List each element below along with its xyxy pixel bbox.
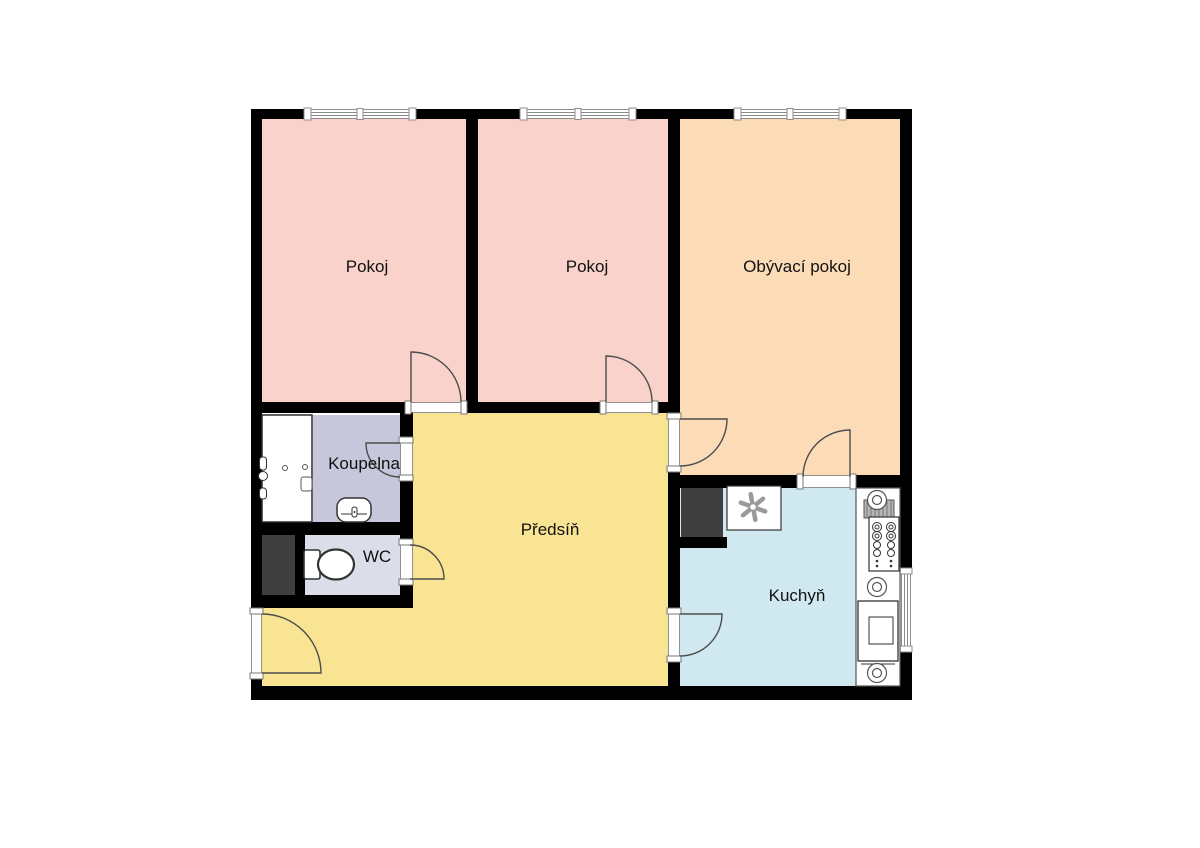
- washbasin-tap-dot: [354, 511, 356, 513]
- door-jamb-cap: [250, 608, 263, 614]
- window-cap: [409, 108, 416, 120]
- room-label-kuchyn: Kuchyň: [769, 586, 826, 605]
- fan-hub: [750, 504, 756, 510]
- door-jamb: [600, 403, 658, 413]
- window-cap: [900, 568, 912, 574]
- room-label-wc: WC: [363, 547, 391, 566]
- door-jamb-cap: [250, 673, 263, 679]
- door-jamb-cap: [797, 474, 803, 489]
- tap-spout: [260, 488, 267, 499]
- door-jamb-cap: [667, 413, 681, 419]
- wall: [668, 537, 727, 548]
- door-jamb-cap: [399, 579, 413, 585]
- door-jamb: [797, 476, 856, 488]
- room-label-koupelna: Koupelna: [328, 454, 400, 473]
- wall: [467, 402, 600, 413]
- door-jamb-cap: [667, 608, 681, 614]
- window-kuchyn: [900, 568, 912, 652]
- window-obyvaci-pokoj: [734, 108, 846, 120]
- room-obyvaci-pokoj-floor: [680, 119, 900, 475]
- window-frame: [902, 574, 911, 646]
- window-pokoj-1: [304, 108, 416, 120]
- room-predsin-floor: [413, 413, 668, 686]
- door-jamb-cap: [399, 437, 413, 443]
- window-cap: [520, 108, 527, 120]
- wall: [900, 651, 912, 700]
- window-cap: [629, 108, 636, 120]
- tap-valve: [259, 472, 268, 481]
- door-jamb: [669, 413, 680, 472]
- wall: [262, 402, 405, 413]
- sink-basin-icon: [868, 491, 887, 510]
- door-jamb: [401, 539, 413, 585]
- service-shaft-wc: [262, 535, 295, 595]
- room-label-obyvaci-pokoj: Obývací pokoj: [743, 257, 851, 276]
- bath-tap-icon: [259, 457, 268, 499]
- wall: [900, 109, 912, 568]
- window-cap: [304, 108, 311, 120]
- room-label-pokoj-1: Pokoj: [346, 257, 389, 276]
- window-pokoj-2: [520, 108, 636, 120]
- door-jamb-cap: [652, 401, 658, 414]
- door-jamb-cap: [405, 401, 411, 414]
- room-predsin-floor-extension: [262, 608, 413, 686]
- door-jamb-cap: [850, 474, 856, 489]
- door-jamb: [401, 437, 413, 481]
- door-jamb-cap: [667, 466, 681, 472]
- oven: [858, 601, 898, 664]
- window-mullion: [787, 109, 793, 120]
- door-jamb: [669, 608, 680, 662]
- wall: [668, 662, 680, 686]
- door-jamb-cap: [461, 401, 467, 414]
- kitchen-counter: [856, 488, 900, 686]
- door-jamb-cap: [399, 475, 413, 481]
- stove-control-panel: [869, 517, 899, 571]
- room-label-pokoj-2: Pokoj: [566, 257, 609, 276]
- wall: [856, 475, 912, 488]
- door-jamb: [252, 608, 262, 679]
- door-jamb-cap: [399, 539, 413, 545]
- window-cap: [839, 108, 846, 120]
- window-mullion: [575, 109, 581, 120]
- window-mullion: [357, 109, 363, 120]
- washbasin: [337, 498, 371, 522]
- wall: [466, 109, 478, 413]
- toilet: [304, 550, 354, 580]
- door-jamb: [405, 403, 467, 413]
- burner-icon: [868, 664, 887, 683]
- floor-plan-drawing: Pokoj Pokoj Obývací pokoj Koupelna WC Př…: [0, 0, 1200, 848]
- wall: [251, 595, 413, 608]
- burner-icon: [868, 578, 887, 597]
- floor-plan: Pokoj Pokoj Obývací pokoj Koupelna WC Př…: [0, 0, 1200, 848]
- wall: [658, 402, 680, 413]
- wall: [251, 686, 912, 700]
- tap-handle: [260, 457, 267, 470]
- soap-dish: [301, 477, 312, 491]
- toilet-bowl: [318, 550, 354, 580]
- window-cap: [900, 646, 912, 652]
- room-label-predsin: Předsíň: [521, 520, 580, 539]
- oven-door: [869, 617, 893, 644]
- window-cap: [734, 108, 741, 120]
- wall: [251, 522, 413, 535]
- door-jamb-cap: [600, 401, 606, 414]
- service-shaft-kitchen: [681, 488, 723, 537]
- wall: [636, 109, 734, 119]
- wall: [668, 109, 680, 413]
- door-jamb-cap: [667, 656, 681, 662]
- ventilation-fan: [727, 486, 781, 530]
